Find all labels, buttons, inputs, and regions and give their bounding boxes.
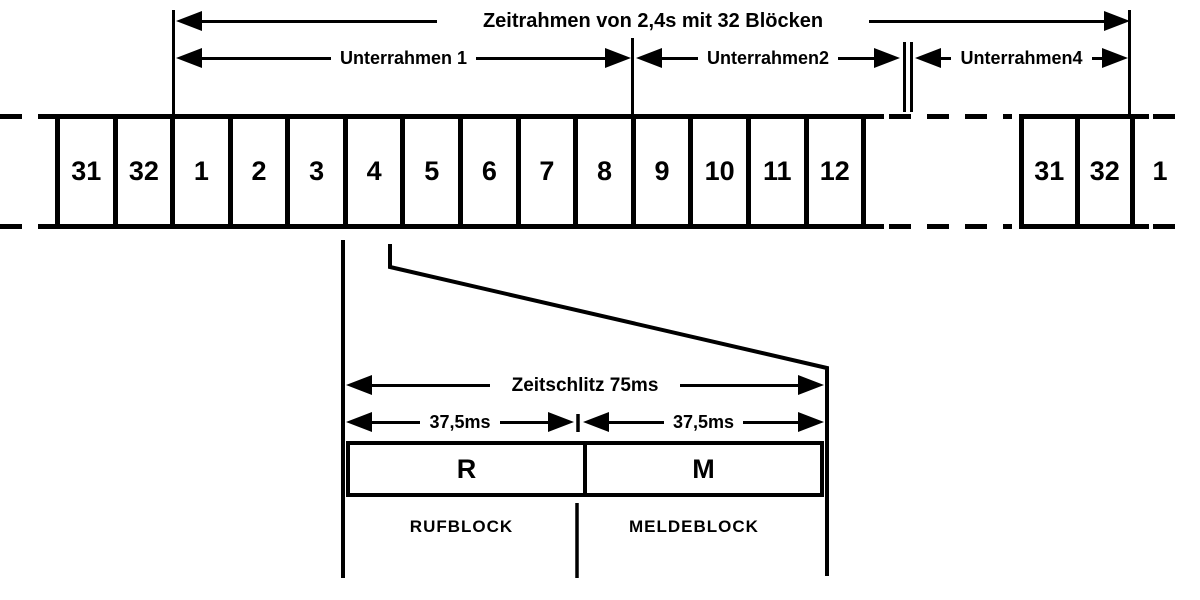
block-cell-open: 1: [1135, 114, 1185, 229]
subframe2-arrow: Unterrahmen2: [636, 47, 900, 69]
subframe1-2-separator-line: [631, 38, 634, 114]
block-cell: 31: [1024, 119, 1080, 224]
block-cell: 8: [578, 119, 636, 224]
arrow-line: [202, 57, 331, 60]
arrow-line: [202, 20, 437, 23]
arrowhead-right-icon: [798, 375, 824, 395]
block-cell: 32: [118, 119, 176, 224]
half-slot-left-arrow: 37,5ms: [346, 411, 574, 433]
subframe1-label: Unterrahmen 1: [331, 49, 476, 67]
arrow-line: [372, 421, 420, 424]
break-double-line-2: [910, 42, 913, 112]
subframe1-arrow: Unterrahmen 1: [176, 47, 631, 69]
arrow-line: [1092, 57, 1102, 60]
band-dash-top-left: [0, 114, 55, 119]
arrow-line: [662, 57, 698, 60]
frame-left-boundary-line: [172, 10, 175, 114]
arrowhead-right-icon: [548, 412, 574, 432]
arrow-line: [500, 421, 548, 424]
block-cell: 11: [751, 119, 809, 224]
band-dash-top-middle: [889, 114, 1012, 119]
band-dash-bottom-left: [0, 224, 55, 229]
arrow-line: [476, 57, 605, 60]
arrow-line: [743, 421, 798, 424]
slot-detail-box: R M: [346, 441, 824, 497]
arrowhead-left-icon: [636, 48, 662, 68]
band-stub-top: [866, 114, 884, 119]
m-block-cell: M: [587, 445, 820, 493]
arrow-line: [680, 384, 798, 387]
subframe4-arrow: Unterrahmen4: [915, 47, 1128, 69]
arrowhead-right-icon: [1104, 11, 1130, 31]
block-cell: 1: [175, 119, 233, 224]
diagram-canvas: Zeitrahmen von 2,4s mit 32 Blöcken Unter…: [0, 0, 1200, 600]
block-cell: 31: [60, 119, 118, 224]
arrowhead-left-icon: [346, 375, 372, 395]
arrowhead-right-icon: [1102, 48, 1128, 68]
arrowhead-right-icon: [605, 48, 631, 68]
timeframe-label: Zeitrahmen von 2,4s mit 32 Blöcken: [437, 11, 869, 31]
arrow-line: [941, 57, 951, 60]
block-cell: 10: [693, 119, 751, 224]
zoom-guide-lines: [0, 0, 1200, 600]
block-row-right: 31 32: [1019, 114, 1135, 229]
arrow-line: [838, 57, 874, 60]
arrow-line: [609, 421, 664, 424]
block-cell: 12: [809, 119, 862, 224]
half-slot-right-arrow: 37,5ms: [583, 411, 824, 433]
block-row-main: 31 32 1 2 3 4 5 6 7 8 9 10 11 12: [55, 114, 866, 229]
arrow-line: [372, 384, 490, 387]
arrowhead-left-icon: [915, 48, 941, 68]
r-block-cell: R: [350, 445, 587, 493]
timeslot-arrow: Zeitschlitz 75ms: [346, 374, 824, 396]
arrowhead-left-icon: [346, 412, 372, 432]
timeslot-label: Zeitschlitz 75ms: [490, 376, 681, 395]
arrowhead-left-icon: [176, 48, 202, 68]
block-cell: 2: [233, 119, 291, 224]
arrowhead-right-icon: [874, 48, 900, 68]
subframe4-label: Unterrahmen4: [951, 49, 1091, 67]
block-cell: 9: [636, 119, 694, 224]
arrowhead-left-icon: [583, 412, 609, 432]
half-slot-right-label: 37,5ms: [664, 413, 743, 431]
meldeblock-label: MELDEBLOCK: [579, 516, 809, 538]
break-double-line-1: [903, 42, 906, 112]
block-cell: 32: [1080, 119, 1131, 224]
arrowhead-left-icon: [176, 11, 202, 31]
block-cell: 5: [405, 119, 463, 224]
band-dash-bottom-middle: [889, 224, 1012, 229]
half-slot-left-label: 37,5ms: [420, 413, 499, 431]
block-cell: 7: [521, 119, 579, 224]
block-cell: 4: [348, 119, 406, 224]
band-stub-bottom: [866, 224, 884, 229]
subframe2-label: Unterrahmen2: [698, 49, 838, 67]
rufblock-label: RUFBLOCK: [346, 516, 577, 538]
block-cell: 3: [290, 119, 348, 224]
timeframe-arrow: Zeitrahmen von 2,4s mit 32 Blöcken: [176, 10, 1130, 32]
block-cell: 6: [463, 119, 521, 224]
arrow-line: [869, 20, 1104, 23]
arrowhead-right-icon: [798, 412, 824, 432]
